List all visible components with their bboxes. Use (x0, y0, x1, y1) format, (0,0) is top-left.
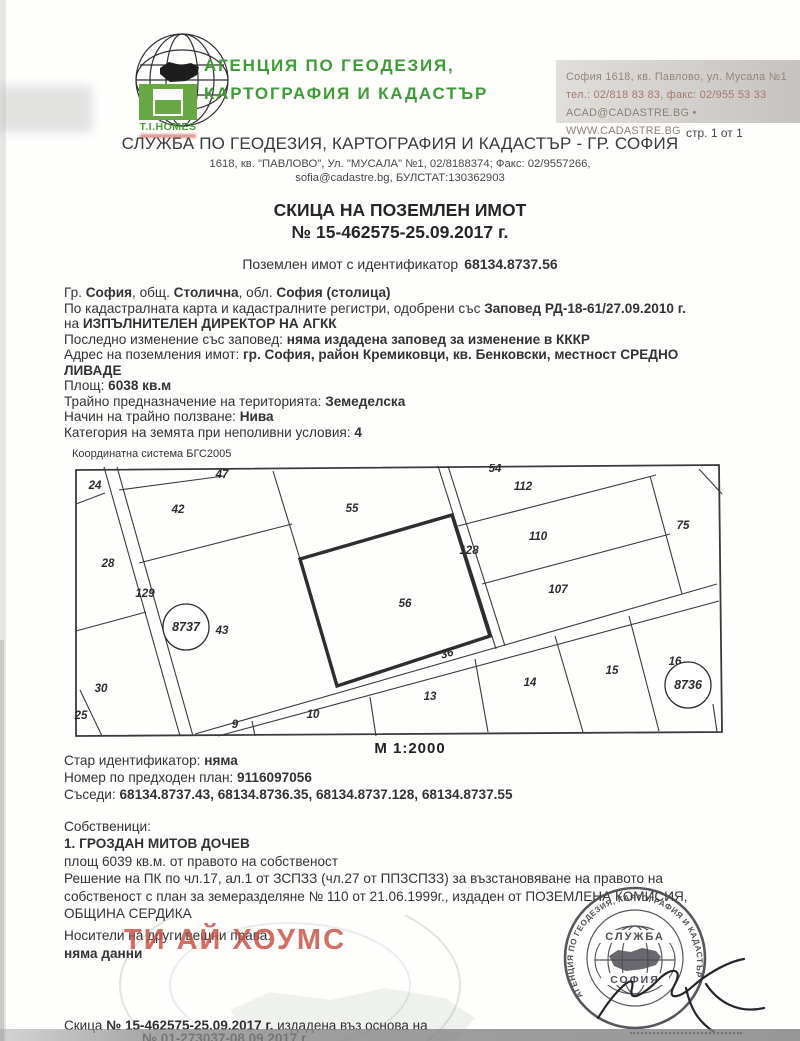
text-line: ЛИВАДЕ (64, 363, 764, 379)
office-address-line1: 1618, кв. "ПАВЛОВО", Ул. "МУСАЛА" №1, 02… (0, 158, 800, 170)
property-details: Гр. София, общ. Столична, обл. София (ст… (64, 285, 764, 440)
parcel-label: 75 (677, 520, 690, 532)
tihomes-red-watermark: ТИ АЙ ХОУМС (124, 924, 346, 957)
text-line: Адрес на поземления имот: гр. София, рай… (64, 347, 764, 363)
parcel-label: 110 (529, 531, 548, 543)
parcel-label: 42 (171, 504, 185, 516)
text-line: Начин на трайно ползване: Нива (64, 409, 764, 425)
parcel-label: 30 (95, 683, 108, 695)
text-line: Трайно предназначение на територията: Зе… (64, 394, 764, 410)
parcel-label: 129 (135, 588, 155, 600)
property-identifier-line: Поземлен имот с идентификатор68134.8737.… (0, 256, 800, 272)
office-title: СЛУЖБА ПО ГЕОДЕЗИЯ, КАРТОГРАФИЯ И КАДАСТ… (0, 134, 800, 154)
parcel-label: 25 (74, 710, 88, 722)
cadastral-map: 2447422812943302555545612811211010775361… (72, 464, 772, 742)
parcel-label: 10 (307, 709, 320, 721)
text-line: Площ: 6038 кв.м (64, 378, 764, 394)
cadastral-region-label: 8736 (674, 678, 703, 692)
coordinate-system-label: Координатна система БГС2005 (72, 448, 231, 460)
text-line: 1. ГРОЗДАН МИТОВ ДОЧЕВ (64, 835, 764, 852)
tihomes-logo: T.I.HOMES (137, 84, 199, 138)
office-address-line2: sofia@cadastre.bg, БУЛСТАТ:130362903 (0, 172, 800, 184)
scan-edge-artifact (0, 640, 4, 1041)
cadastral-region-label: 8737 (172, 620, 201, 634)
parcel-label: 15 (606, 665, 619, 677)
parcel-label: 56 (399, 598, 412, 610)
text-line: Номер по предходен план: 9116097056 (64, 769, 764, 786)
tihomes-logo-mark (139, 84, 197, 120)
text-line: площ 6039 кв.м. от правото на собственос… (64, 853, 764, 870)
parcel-label: 9 (232, 719, 239, 731)
parcel-label: 13 (424, 691, 437, 703)
document-page: T.I.HOMES АГЕНЦИЯ ПО ГЕОДЕЗИЯ, КАРТОГРАФ… (0, 0, 800, 1041)
text-line: По кадастралната карта и кадастралните р… (64, 301, 764, 317)
parcel-label: 43 (215, 625, 229, 637)
agency-name-line1: АГЕНЦИЯ ПО ГЕОДЕЗИЯ, (204, 52, 488, 80)
tihomes-logo-text: T.I.HOMES (137, 121, 199, 133)
contact-address: София 1618, кв. Павлово, ул. Мусала №1 (566, 68, 800, 86)
tihomes-door-icon (153, 89, 183, 116)
scan-smudge-artifact (0, 86, 92, 132)
text-line: Собственици: (64, 818, 764, 835)
parcel-label: 107 (548, 584, 568, 596)
handwritten-signature (590, 952, 775, 1038)
parcel-label: 28 (101, 558, 115, 570)
parcel-label: 55 (346, 503, 359, 515)
document-number: № 15-462575-25.09.2017 г. (0, 222, 800, 243)
property-identifier-label: Поземлен имот с идентификатор (242, 256, 458, 272)
property-identifier-value: 68134.8737.56 (464, 256, 557, 272)
text-line: Гр. София, общ. Столична, обл. София (ст… (64, 285, 764, 301)
document-title: СКИЦА НА ПОЗЕМЛЕН ИМОТ (0, 200, 800, 221)
contact-block: София 1618, кв. Павлово, ул. Мусала №1 т… (556, 60, 800, 123)
parcel-label: 128 (459, 545, 479, 557)
parcel-label: 112 (514, 481, 533, 493)
agency-name-line2: КАРТОГРАФИЯ И КАДАСТЪР (204, 80, 488, 108)
text-line: Последно изменение със заповед: няма изд… (64, 332, 764, 348)
contact-phones: тел.: 02/818 83 83, факс: 02/955 53 33 (566, 86, 800, 104)
agency-name: АГЕНЦИЯ ПО ГЕОДЕЗИЯ, КАРТОГРАФИЯ И КАДАС… (204, 52, 488, 108)
parcel-label: 54 (489, 464, 502, 475)
scan-band-artifact (0, 1029, 800, 1041)
identifier-info: Стар идентификатор: нямаНомер по предход… (64, 752, 764, 803)
stamp-top-text: СЛУЖБА (605, 931, 665, 943)
parcel-label: 47 (215, 469, 229, 481)
parcel-label: 14 (524, 677, 537, 689)
parcel-label: 24 (88, 480, 102, 492)
text-line: Стар идентификатор: няма (64, 752, 764, 769)
text-line: Категория на земята при неполивни услови… (64, 425, 764, 441)
text-line: Съседи: 68134.8737.43, 68134.8736.35, 68… (64, 786, 764, 803)
text-line: на ИЗПЪЛНИТЕЛЕН ДИРЕКТОР НА АГКК (64, 316, 764, 332)
